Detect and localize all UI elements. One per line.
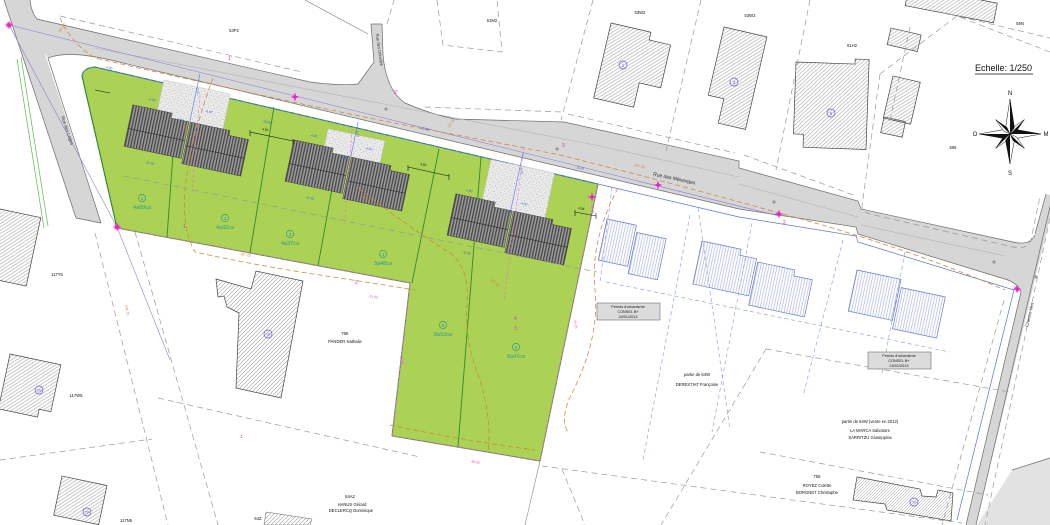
svg-text:HANUS Gérard: HANUS Gérard (338, 502, 368, 507)
svg-text:N: N (1008, 91, 1012, 97)
svg-text:4a32ca: 4a32ca (216, 225, 235, 231)
svg-text:117W5: 117W5 (70, 393, 84, 398)
svg-text:79: 79 (912, 501, 916, 505)
svg-text:3a48ca: 3a48ca (374, 261, 393, 267)
svg-text:59N: 59N (1016, 21, 1024, 26)
svg-text:755: 755 (814, 474, 822, 479)
svg-text:LA MARCA Salvatore: LA MARCA Salvatore (850, 428, 890, 433)
svg-text:595: 595 (950, 145, 958, 150)
svg-text:S: S (1008, 171, 1012, 177)
svg-text:1': 1' (228, 56, 232, 62)
svg-text:2: 2 (783, 220, 786, 226)
svg-text:Permis d'urbanisme: Permis d'urbanisme (611, 305, 644, 309)
svg-text:8a53ca: 8a53ca (434, 332, 453, 338)
svg-text:24/01/2013: 24/01/2013 (889, 364, 908, 368)
svg-text:53W2: 53W2 (745, 13, 757, 18)
svg-text:24/01/2013: 24/01/2013 (618, 315, 637, 319)
svg-text:64A2: 64A2 (345, 494, 355, 499)
svg-text:15b: 15b (84, 511, 90, 515)
svg-text:ROYEZ Colette: ROYEZ Colette (803, 483, 833, 488)
svg-text:4a37ca: 4a37ca (281, 241, 300, 247)
svg-text:partie de 64W: partie de 64W (684, 372, 710, 377)
svg-text:DERESTIAT Françoise: DERESTIAT Françoise (676, 382, 719, 387)
svg-text:18: 18 (266, 333, 270, 337)
svg-text:64Z: 64Z (254, 516, 262, 521)
svg-text:Echelle: 1/250: Echelle: 1/250 (975, 63, 1032, 73)
svg-text:53P2: 53P2 (229, 28, 239, 33)
svg-text:8a47ca: 8a47ca (507, 354, 526, 360)
svg-text:DECLERCQ Dominique: DECLERCQ Dominique (329, 508, 374, 513)
svg-text:117N5: 117N5 (120, 518, 133, 523)
svg-text:117Y5: 117Y5 (51, 272, 63, 277)
svg-text:4: 4 (514, 316, 517, 322)
svg-text:1: 1 (183, 224, 186, 230)
svg-text:Permis d'urbanisme: Permis d'urbanisme (882, 354, 915, 358)
svg-text:O: O (973, 132, 978, 138)
svg-text:PANDER Nathalie: PANDER Nathalie (328, 339, 362, 344)
svg-text:15a: 15a (36, 389, 42, 393)
svg-text:3: 3 (514, 326, 517, 332)
svg-text:53W2: 53W2 (635, 10, 647, 15)
svg-text:76K: 76K (341, 331, 349, 336)
svg-text:3: 3 (562, 143, 565, 149)
svg-text:SARRITZU Giuseppina: SARRITZU Giuseppina (848, 435, 892, 440)
svg-text:2': 2' (394, 90, 398, 96)
svg-text:61H2: 61H2 (847, 43, 858, 48)
svg-text:BORGNET Christophe: BORGNET Christophe (796, 490, 839, 495)
svg-text:CONSEL B+: CONSEL B+ (888, 359, 910, 363)
svg-text:M: M (1044, 132, 1049, 138)
svg-text:4a69ca: 4a69ca (133, 205, 152, 211)
svg-text:2: 2 (355, 280, 358, 286)
svg-text:61M2: 61M2 (487, 18, 498, 23)
svg-text:CONSEL B+: CONSEL B+ (617, 310, 639, 314)
svg-text:partie de 64W (vente en 2: partie de 64W (vente en 2012) (842, 419, 899, 424)
